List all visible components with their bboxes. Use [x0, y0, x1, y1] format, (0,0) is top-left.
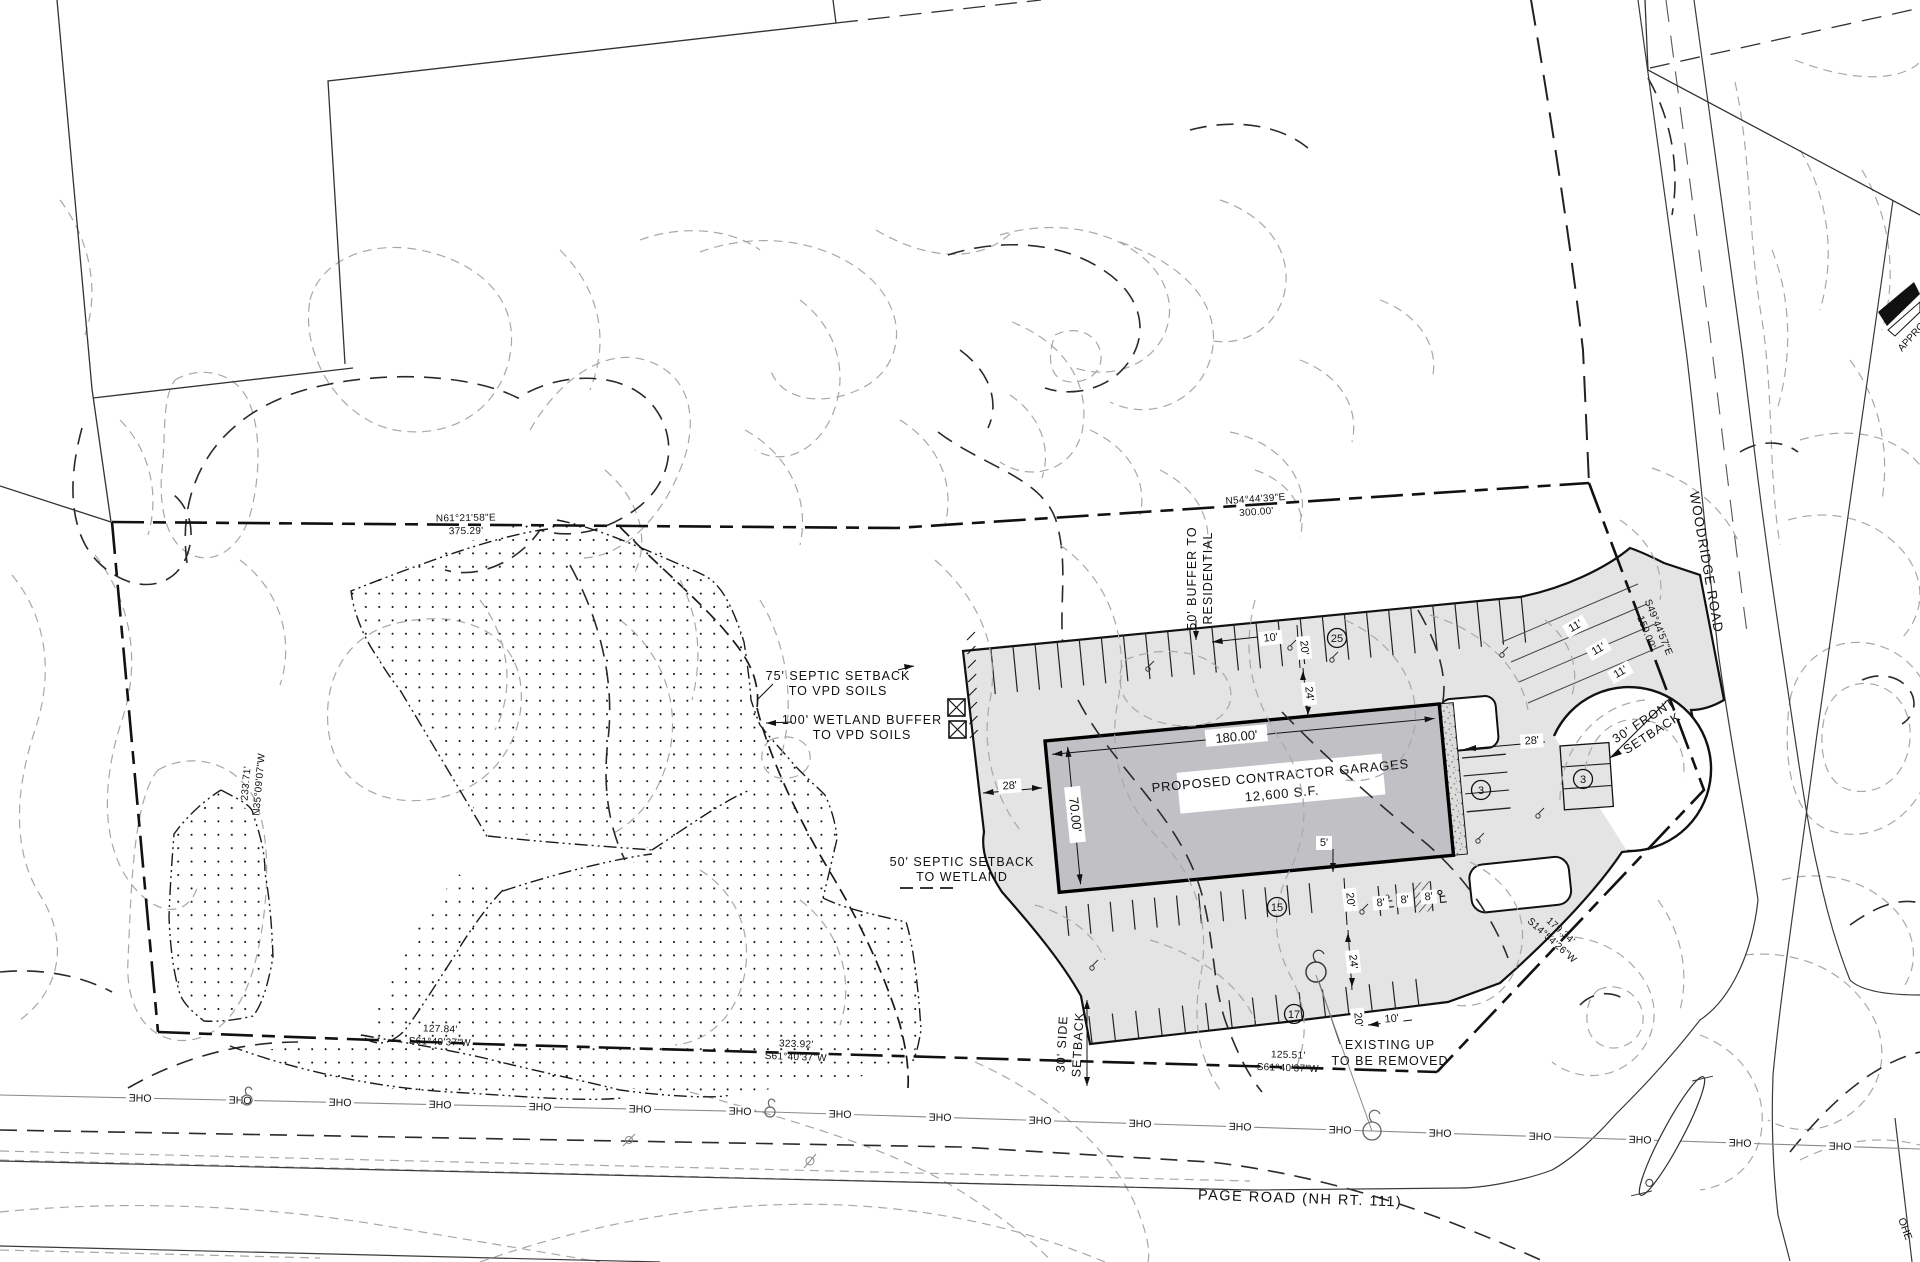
svg-text:ƎHO: ƎHO: [129, 1092, 152, 1105]
svg-text:10': 10': [1384, 1012, 1399, 1025]
svg-text:8': 8': [1400, 894, 1409, 907]
svg-text:ƎHO: ƎHO: [729, 1106, 752, 1119]
svg-text:100' WETLAND BUFFER: 100' WETLAND BUFFER: [782, 713, 942, 727]
svg-text:5': 5': [1320, 837, 1328, 849]
svg-text:50' SEPTIC SETBACK: 50' SEPTIC SETBACK: [890, 855, 1035, 869]
svg-text:ƎHO: ƎHO: [1029, 1115, 1052, 1128]
svg-text:323.92': 323.92': [779, 1038, 814, 1050]
svg-text:75' SEPTIC SETBACK: 75' SEPTIC SETBACK: [766, 669, 911, 683]
svg-text:20': 20': [1343, 892, 1356, 908]
svg-text:125.51': 125.51': [1271, 1049, 1306, 1061]
svg-text:ƎHO: ƎHO: [1829, 1141, 1852, 1154]
svg-text:TO WETLAND: TO WETLAND: [916, 870, 1008, 884]
svg-text:28': 28': [1002, 780, 1017, 793]
svg-text:S61°40'37"W: S61°40'37"W: [1256, 1062, 1319, 1075]
svg-text:ƎHO: ƎHO: [1129, 1118, 1152, 1131]
svg-text:TO BE REMOVED: TO BE REMOVED: [1332, 1054, 1449, 1068]
svg-text:17: 17: [1288, 1009, 1300, 1021]
svg-text:ƎHO: ƎHO: [1229, 1121, 1252, 1134]
svg-text:ƎHO: ƎHO: [1629, 1134, 1652, 1147]
svg-text:ƎHO: ƎHO: [1329, 1124, 1352, 1137]
svg-text:ƎHO: ƎHO: [829, 1108, 852, 1121]
svg-text:10': 10': [1263, 631, 1279, 644]
svg-text:127.84': 127.84': [423, 1023, 458, 1035]
svg-text:24': 24': [1346, 954, 1359, 970]
svg-text:50' BUFFER TO: 50' BUFFER TO: [1185, 526, 1199, 629]
svg-text:3: 3: [1580, 774, 1586, 786]
svg-text:N61°21'58"E: N61°21'58"E: [436, 512, 496, 524]
svg-text:28': 28': [1524, 735, 1539, 748]
svg-text:25: 25: [1331, 633, 1343, 645]
svg-text:ƎHO: ƎHO: [1429, 1127, 1452, 1140]
svg-text:8': 8': [1376, 897, 1385, 910]
svg-text:8': 8': [1424, 891, 1433, 904]
svg-text:375.29': 375.29': [449, 526, 484, 538]
svg-text:RESIDENTIAL: RESIDENTIAL: [1201, 532, 1215, 625]
svg-text:ƎHO: ƎHO: [529, 1101, 552, 1114]
svg-text:3: 3: [1478, 785, 1484, 797]
svg-text:ƎHO: ƎHO: [629, 1103, 652, 1116]
svg-text:ƎHO: ƎHO: [1529, 1131, 1552, 1144]
svg-text:ƎHO: ƎHO: [929, 1112, 952, 1125]
svg-text:30' SIDE: 30' SIDE: [1054, 1015, 1071, 1073]
svg-text:20': 20': [1351, 1012, 1364, 1028]
svg-text:TO VPD SOILS: TO VPD SOILS: [789, 684, 888, 698]
svg-text:ƎHO: ƎHO: [429, 1099, 452, 1112]
svg-text:TO VPD SOILS: TO VPD SOILS: [813, 728, 912, 742]
svg-text:S61°40'37"W: S61°40'37"W: [408, 1036, 471, 1049]
svg-text:ƎHO: ƎHO: [1729, 1137, 1752, 1150]
svg-text:ƎHO: ƎHO: [329, 1097, 352, 1110]
svg-text:20': 20': [1297, 640, 1310, 656]
svg-text:15: 15: [1271, 902, 1283, 914]
svg-text:EXISTING UP: EXISTING UP: [1345, 1038, 1435, 1052]
svg-text:S61°40'37"W: S61°40'37"W: [764, 1051, 827, 1064]
svg-text:24': 24': [1302, 686, 1315, 702]
